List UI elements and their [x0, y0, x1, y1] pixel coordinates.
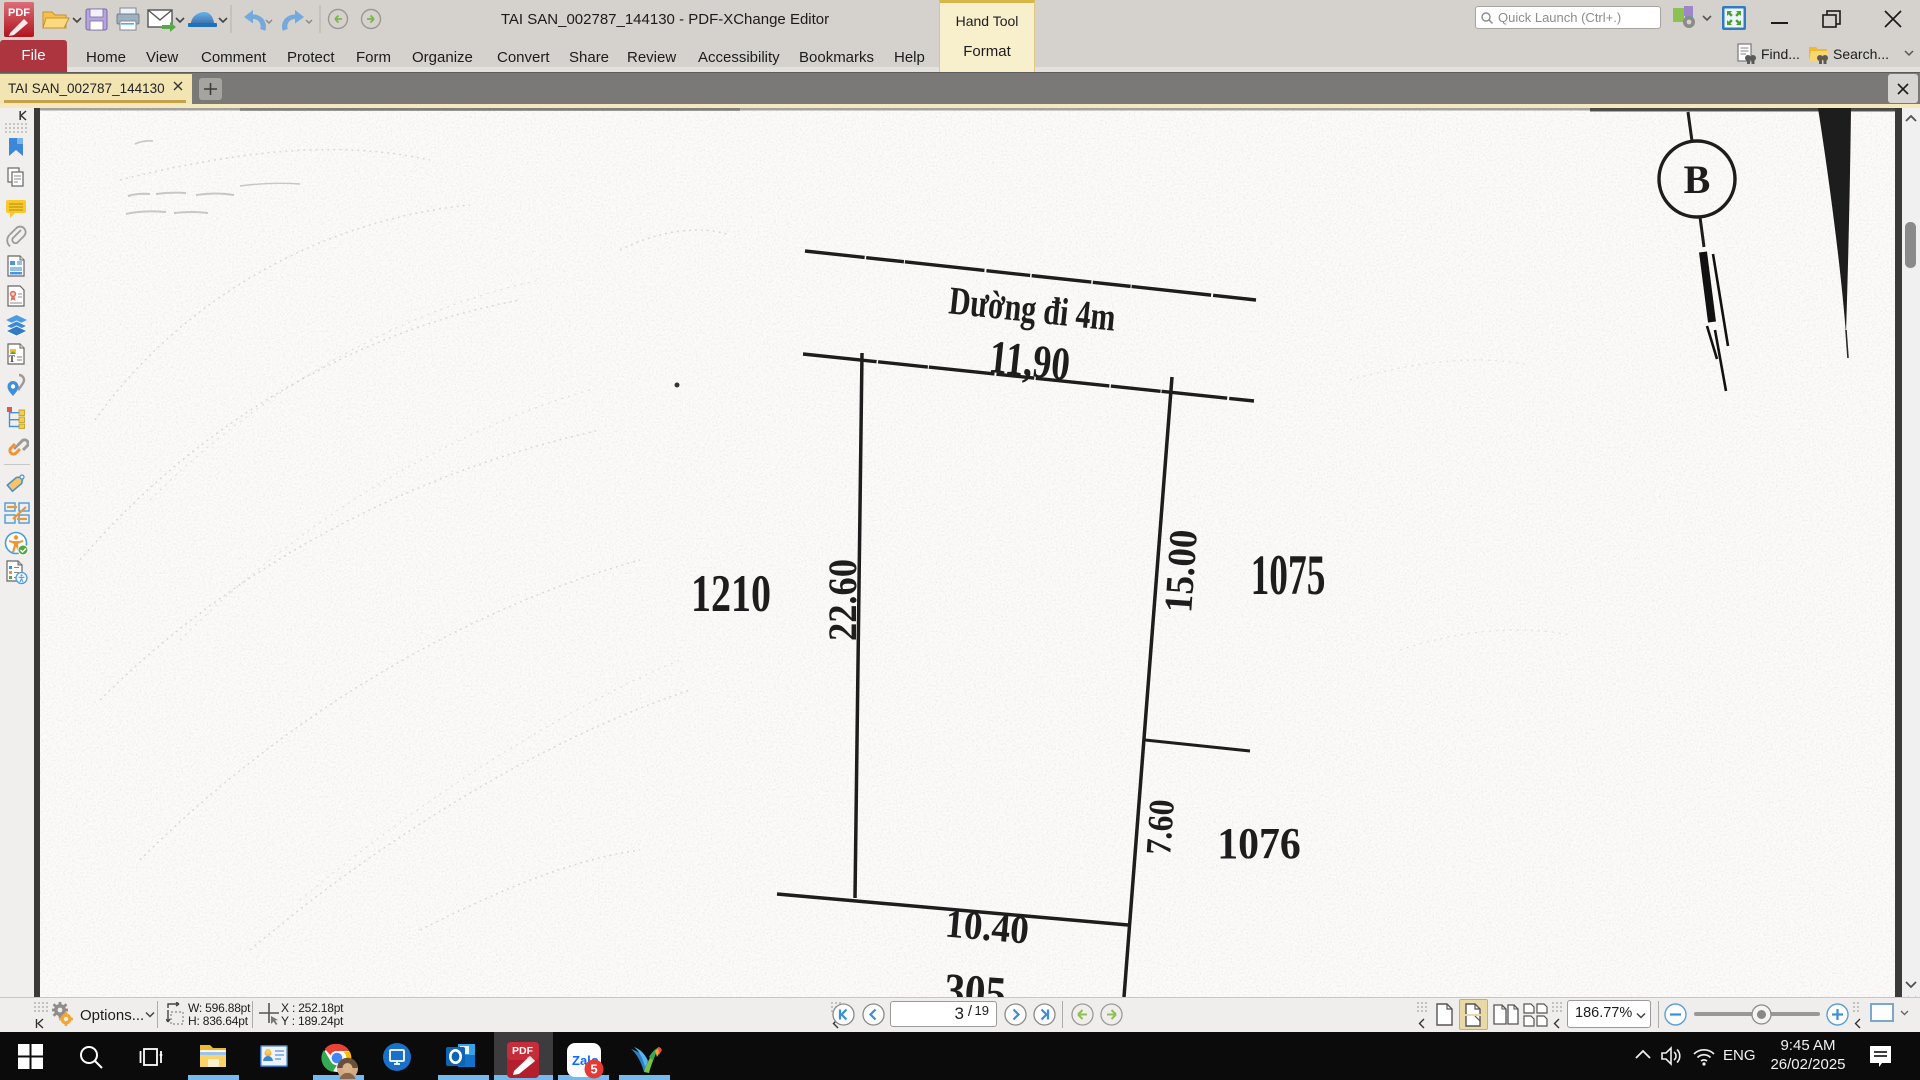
svg-text:T: T: [9, 354, 15, 364]
svg-text:7.60: 7.60: [1139, 798, 1182, 856]
svg-text:1075: 1075: [1251, 544, 1326, 607]
svg-text:PDF: PDF: [512, 1045, 534, 1057]
svg-text:1076: 1076: [1217, 819, 1301, 869]
svg-text:22.60: 22.60: [822, 559, 866, 641]
svg-text:PDF: PDF: [8, 7, 30, 19]
svg-text:1210: 1210: [691, 565, 771, 624]
svg-text:15.00: 15.00: [1157, 528, 1206, 614]
svg-text:10.40: 10.40: [943, 902, 1030, 953]
svg-text:5: 5: [590, 1062, 597, 1077]
svg-text:B: B: [1684, 157, 1711, 202]
svg-text:305: 305: [942, 963, 1008, 997]
svg-text:11,90: 11,90: [987, 331, 1073, 391]
